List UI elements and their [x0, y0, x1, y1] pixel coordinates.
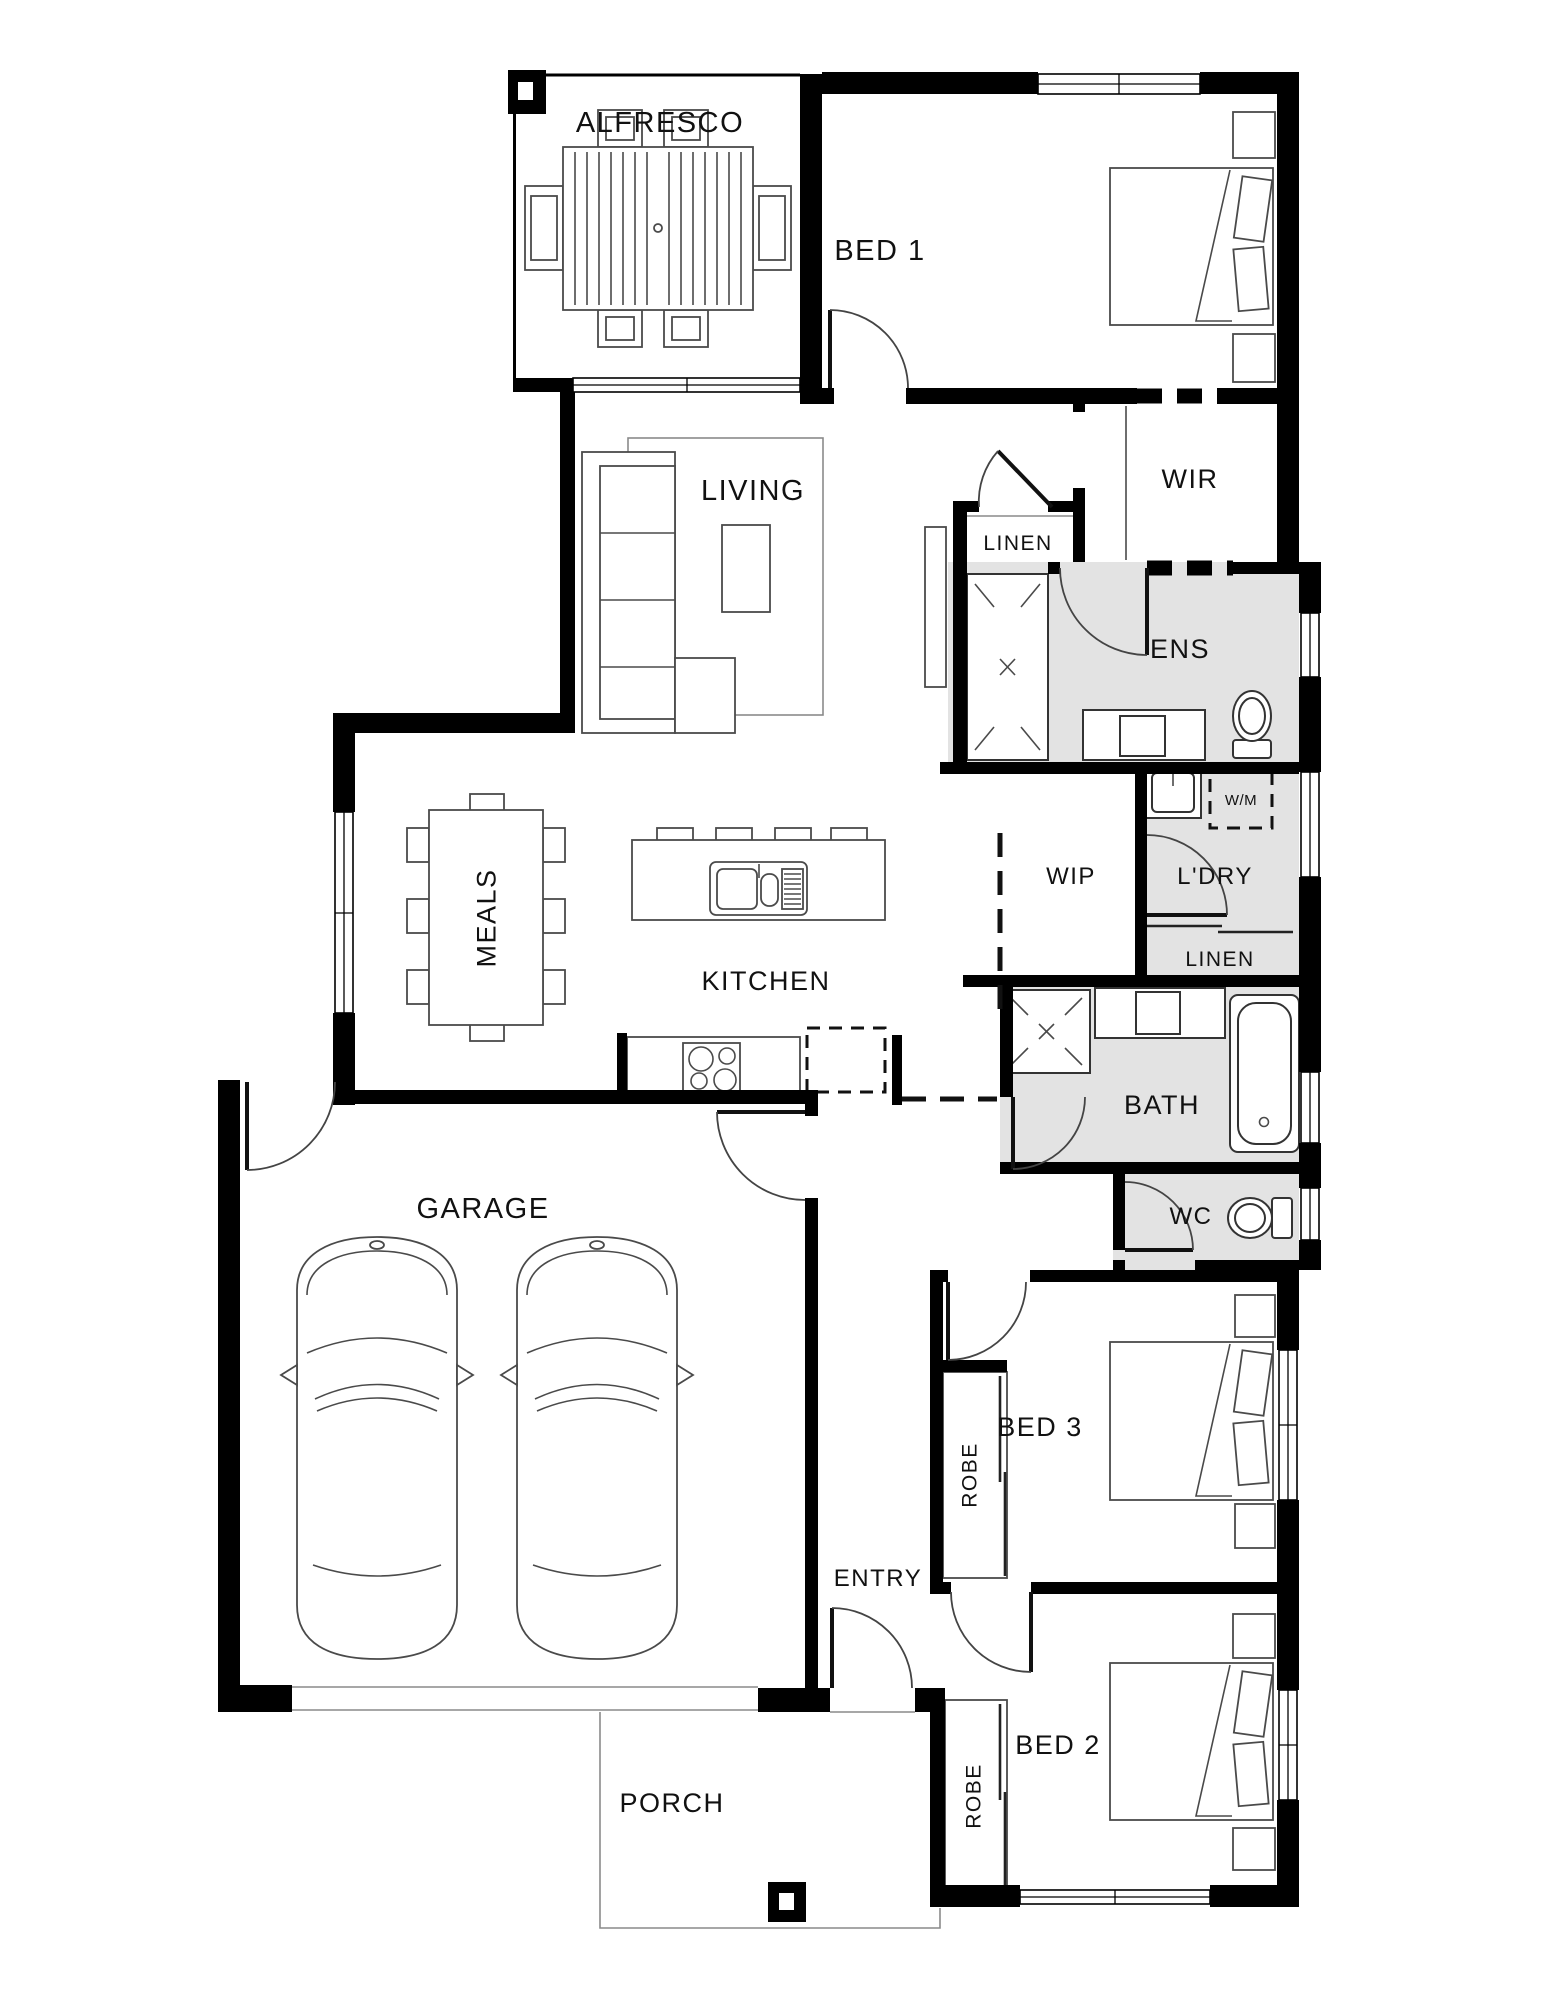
room-label-kitchen: KITCHEN	[701, 966, 830, 996]
wall	[822, 72, 1038, 94]
wall	[930, 1885, 1020, 1907]
window-meals-left	[335, 812, 353, 1013]
sofa-chaise	[675, 658, 735, 733]
room-label-bath: BATH	[1124, 1090, 1200, 1120]
pillow	[1233, 247, 1268, 311]
wall	[906, 388, 1137, 404]
nightstand	[1233, 112, 1275, 158]
cistern	[1233, 740, 1271, 758]
wall	[1073, 404, 1085, 412]
ens-toilet	[1233, 691, 1271, 758]
bed1-furniture	[1110, 112, 1275, 382]
island-sink	[710, 862, 807, 915]
nightstand	[1233, 334, 1275, 382]
door-garage-pa	[247, 1082, 335, 1170]
cooktop	[683, 1043, 740, 1092]
table-umbrella-hole	[654, 224, 662, 232]
mirror	[457, 1365, 473, 1385]
mirror	[281, 1365, 297, 1385]
floor-plan-drawing: ALFRESCO BED 1 LIVING WIR LINEN ENS MEAL…	[0, 0, 1563, 1990]
room-label-ens: ENS	[1150, 634, 1210, 664]
kitchen-furniture	[627, 828, 885, 1092]
pillow	[1233, 1742, 1268, 1806]
wall	[940, 762, 1299, 774]
nightstand	[1235, 1504, 1275, 1548]
bed3-furniture	[1110, 1295, 1275, 1548]
window-bath-right	[1301, 1072, 1319, 1143]
wall	[333, 713, 575, 733]
wall	[1135, 774, 1147, 983]
room-label-robe-bed3: ROBE	[958, 1442, 981, 1508]
wall	[218, 1685, 292, 1712]
car-body	[297, 1237, 457, 1659]
window-bed3-right	[1279, 1350, 1297, 1500]
door-bed3	[948, 1282, 1026, 1360]
stool	[775, 828, 811, 841]
door-bed1	[830, 310, 908, 388]
nightstand	[1233, 1614, 1275, 1658]
room-label-bed1: BED 1	[834, 235, 925, 267]
window-wc-right	[1301, 1188, 1319, 1240]
room-label-porch: PORCH	[619, 1788, 724, 1818]
chair-seat	[606, 317, 634, 340]
bath-basin	[1136, 992, 1180, 1034]
wall	[1277, 72, 1299, 574]
stool	[716, 828, 752, 841]
chair-seat	[672, 317, 700, 340]
wall	[1277, 1800, 1299, 1907]
room-label-meals: MEALS	[471, 868, 501, 967]
bathtub	[1230, 995, 1299, 1152]
wall	[963, 975, 1299, 987]
wall	[1233, 562, 1299, 574]
room-label-wc: WC	[1170, 1203, 1213, 1230]
tall-cupboard	[925, 527, 946, 687]
window-bed1-top	[1038, 74, 1200, 94]
wall	[805, 1090, 818, 1116]
post-core	[779, 1893, 794, 1910]
wall	[1277, 1270, 1299, 1350]
badge	[370, 1241, 384, 1249]
hall-cupboard	[925, 527, 946, 687]
wall	[1000, 1162, 1299, 1174]
chair	[543, 828, 565, 862]
chair	[407, 828, 429, 862]
room-label-linen-hall: LINEN	[983, 532, 1052, 555]
wall	[1048, 501, 1082, 512]
room-label-bed3: BED 3	[997, 1412, 1083, 1442]
room-label-alfresco: ALFRESCO	[576, 107, 744, 139]
room-label-laundry: L'DRY	[1177, 863, 1253, 890]
wall	[930, 1582, 951, 1594]
wall	[560, 378, 575, 733]
wall	[1277, 1500, 1299, 1690]
bed2-furniture	[1110, 1614, 1275, 1870]
car-1	[281, 1237, 473, 1659]
stool	[657, 828, 693, 841]
wall	[1217, 388, 1277, 404]
wall	[1031, 1582, 1277, 1594]
wall	[953, 503, 967, 763]
door-bed2	[951, 1592, 1031, 1672]
car-body	[517, 1237, 677, 1659]
ens-basin	[1120, 716, 1165, 756]
door-garage-hall	[717, 1112, 805, 1200]
coffee-table	[722, 525, 770, 612]
room-label-entry: ENTRY	[834, 1565, 922, 1592]
wall	[892, 1035, 902, 1105]
alfresco-dining-set	[525, 110, 791, 347]
door-hall-linen	[979, 451, 1052, 507]
chair-seat	[759, 196, 785, 260]
mirror	[677, 1365, 693, 1385]
window-laundry-right	[1301, 772, 1319, 877]
wall	[805, 1198, 818, 1688]
wall	[800, 74, 822, 404]
wall	[1073, 488, 1085, 562]
stool	[831, 828, 867, 841]
floor-plan-page: ALFRESCO BED 1 LIVING WIR LINEN ENS MEAL…	[0, 0, 1563, 1990]
dashed-lines	[902, 833, 1000, 1099]
wc-toilet	[1228, 1198, 1292, 1238]
wall	[1299, 1143, 1321, 1188]
fridge-space	[807, 1028, 885, 1092]
window-bed2-bottom	[1020, 1890, 1210, 1904]
wall	[930, 1360, 1007, 1372]
wall	[1113, 1174, 1125, 1250]
wall	[333, 733, 355, 812]
wall	[930, 1282, 943, 1360]
window-bed2-right	[1279, 1690, 1297, 1800]
wall	[1299, 677, 1321, 772]
wall	[333, 1090, 805, 1104]
window-ens-right	[1301, 613, 1319, 677]
pillow	[1233, 1421, 1268, 1485]
room-label-robe-bed2: ROBE	[962, 1763, 985, 1829]
car-2	[501, 1237, 693, 1659]
cistern	[1272, 1198, 1292, 1238]
chair	[407, 970, 429, 1004]
chair	[543, 970, 565, 1004]
wall	[1030, 1270, 1277, 1282]
sink-bowl	[717, 869, 757, 909]
pan-inner	[1235, 1204, 1265, 1232]
wall	[822, 388, 834, 404]
wall	[1299, 562, 1321, 613]
nightstand	[1233, 1828, 1275, 1870]
chair	[543, 899, 565, 933]
sink-half-bowl	[761, 874, 778, 906]
door-entry-front	[832, 1608, 912, 1688]
room-label-garage: GARAGE	[416, 1193, 549, 1225]
wall	[617, 1033, 627, 1092]
wall	[930, 1692, 945, 1907]
chair	[407, 899, 429, 933]
wall	[1299, 1240, 1321, 1270]
nightstand	[1235, 1295, 1275, 1337]
sofa-seat	[600, 466, 675, 719]
label-washing-machine: W/M	[1225, 792, 1257, 809]
porch-slab	[292, 1687, 940, 1928]
wall	[930, 1270, 948, 1282]
chair-seat	[531, 196, 557, 260]
room-label-wip: WIP	[1046, 863, 1096, 890]
wall	[1048, 562, 1060, 574]
room-label-linen-laundry: LINEN	[1185, 948, 1254, 971]
wall	[1299, 877, 1321, 1072]
badge	[590, 1241, 604, 1249]
wall	[758, 1688, 830, 1712]
window-alfresco-living	[573, 378, 800, 392]
post-core	[518, 82, 533, 100]
drainer-ribs	[784, 874, 801, 904]
mirror	[501, 1365, 517, 1385]
pan-inner	[1239, 698, 1265, 734]
room-label-bed2: BED 2	[1015, 1730, 1101, 1760]
room-label-wir: WIR	[1162, 464, 1219, 494]
tub-inner	[1238, 1003, 1291, 1144]
wall	[218, 1102, 240, 1712]
wall	[218, 1080, 240, 1102]
room-label-living: LIVING	[701, 475, 805, 507]
wall	[930, 1372, 943, 1582]
